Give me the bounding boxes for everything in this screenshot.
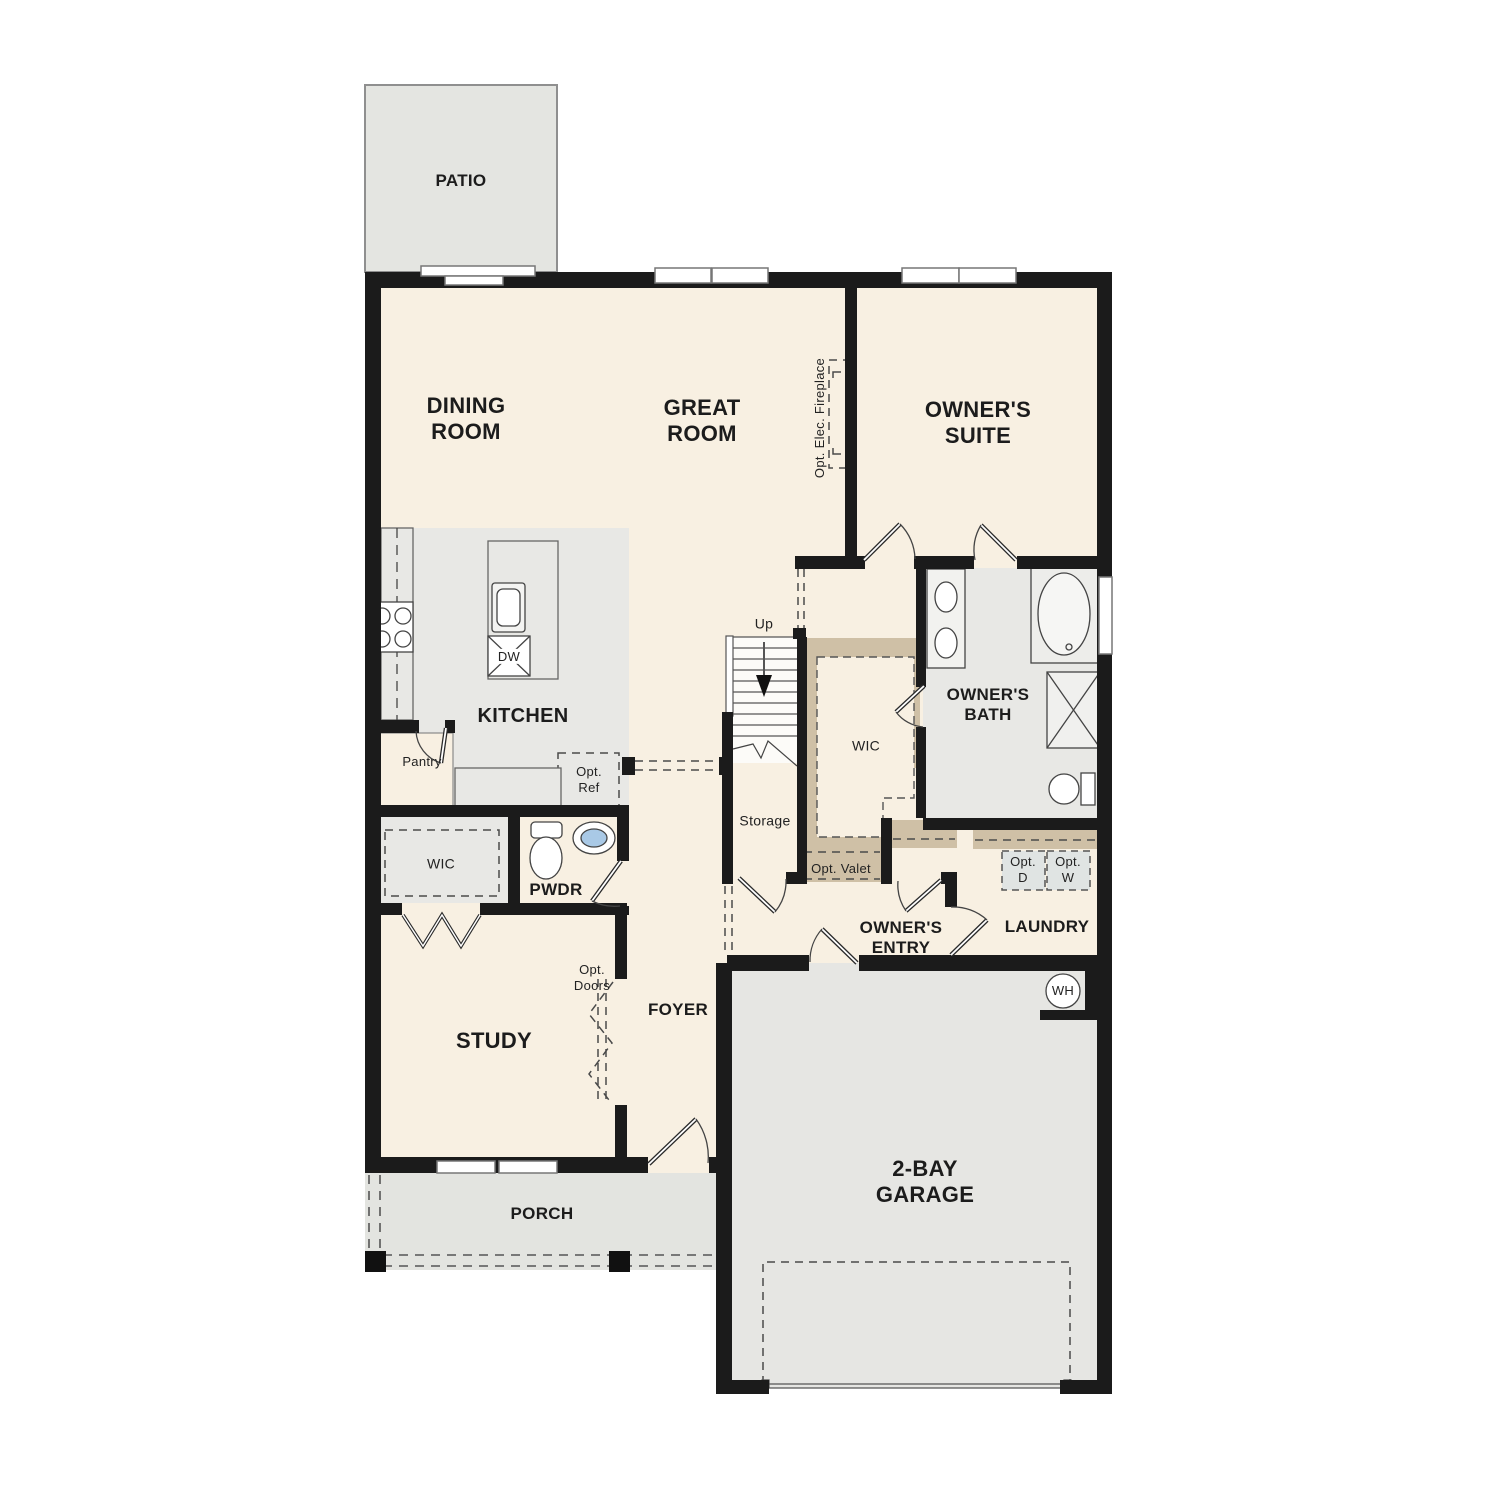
study-window-1 [437,1161,495,1173]
floor-plan-drawing [0,0,1500,1500]
suite-window-1 [902,268,959,283]
bath-toilet-bowl [1049,774,1079,804]
opt-elec-fireplace-label: Opt. Elec. Fireplace [812,358,828,478]
opt-valet-label: Opt. Valet [811,861,871,877]
pwdr-toilet-tank [531,822,562,838]
kitchen-counter-bottom [455,768,561,806]
study-wic-label: WIC [427,856,455,873]
tub-window [1099,577,1112,654]
owners-bath-label: OWNER'S BATH [947,685,1030,725]
garage-label: 2-BAY GARAGE [876,1156,974,1208]
opt-dryer-label: Opt. D [1010,854,1036,887]
owners-suite-label: OWNER'S SUITE [925,397,1031,449]
pwdr-label: PWDR [529,880,582,900]
dishwasher-label: DW [496,649,522,665]
pwdr-sink-basin [581,829,607,847]
storage-label: Storage [739,813,790,830]
porch-post-right [609,1251,630,1272]
foyer-label: FOYER [648,1000,708,1020]
opt-washer-label: Opt. W [1055,854,1081,887]
patio-label: PATIO [436,171,487,191]
great-room-window-2 [712,268,768,283]
patio-door-inner [445,276,503,285]
bathtub [1038,573,1090,655]
porch-label: PORCH [511,1204,574,1224]
vanity-sink-2 [935,628,957,658]
bath-toilet-tank [1081,773,1095,805]
water-heater-label: WH [1052,983,1074,999]
great-room-window-1 [655,268,711,283]
owners-wic-label: WIC [852,738,880,755]
stair-railing [726,636,733,716]
opt-ref-label: Opt. Ref [576,764,602,797]
laundry-label: LAUNDRY [1005,917,1090,937]
study-window-2 [499,1161,557,1173]
pantry-label: Pantry [402,754,441,770]
great-room-label: GREAT ROOM [664,395,741,447]
vanity-sink-1 [935,582,957,612]
pwdr-toilet-bowl [530,837,562,879]
kitchen-label: KITCHEN [478,705,569,729]
floor-plan: PATIO DINING ROOM GREAT ROOM OWNER'S SUI… [0,0,1500,1500]
porch-post-left [365,1251,386,1272]
dining-room-label: DINING ROOM [427,393,506,445]
up-label: Up [755,616,774,633]
island-sink-basin [497,589,520,626]
owners-entry-label: OWNER'S ENTRY [860,918,943,958]
opt-doors-label: Opt. Doors [574,962,610,995]
study-label: STUDY [456,1028,532,1054]
patio-door-outer [421,266,535,276]
suite-window-2 [959,268,1016,283]
